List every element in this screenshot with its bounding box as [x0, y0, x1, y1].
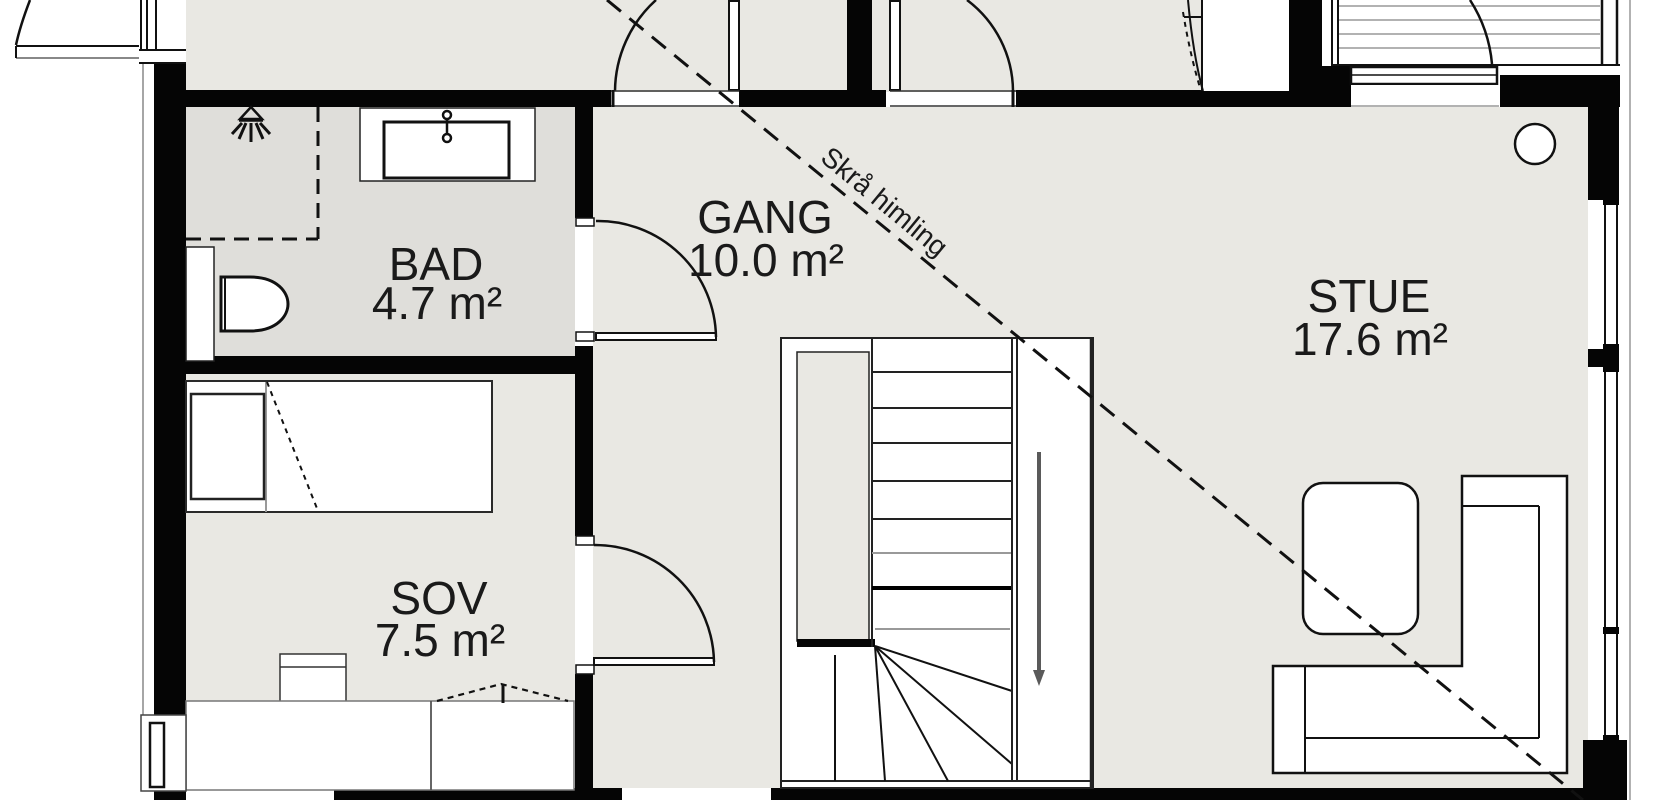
- svg-text:7.5 m²: 7.5 m²: [375, 614, 505, 666]
- svg-text:17.6 m²: 17.6 m²: [1292, 313, 1448, 365]
- svg-text:4.7 m²: 4.7 m²: [372, 277, 502, 329]
- svg-text:10.0 m²: 10.0 m²: [688, 234, 844, 286]
